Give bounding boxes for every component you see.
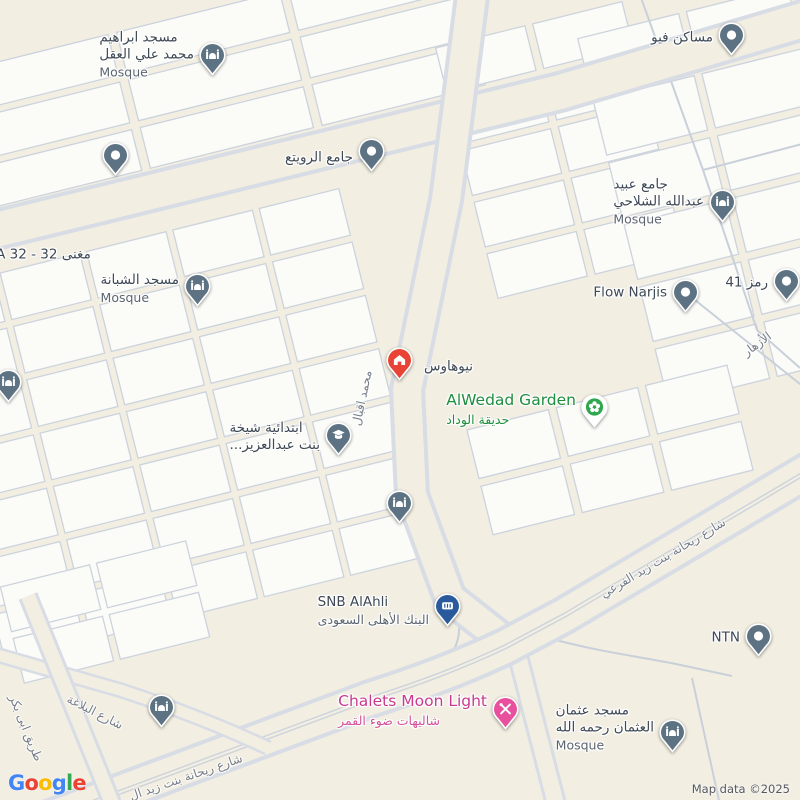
mosque-icon xyxy=(0,369,22,403)
dot-icon xyxy=(718,22,745,56)
poi-label-line: مسجد ابراهيم xyxy=(99,30,177,47)
poi-pin-newhouse[interactable] xyxy=(386,347,413,381)
poi-label-line: مسجد الشبانة xyxy=(101,272,179,289)
dot-icon xyxy=(745,623,772,657)
poi-pin-alwedad-garden[interactable] xyxy=(581,394,608,428)
dot-icon xyxy=(358,138,385,172)
tools-icon xyxy=(492,696,519,730)
poi-pin-masaken-view[interactable] xyxy=(718,22,745,56)
poi-label-alwedad-garden[interactable]: AlWedad Gardenحديقة الوداد xyxy=(446,391,576,429)
poi-label-newhouse[interactable]: نيوهاوس xyxy=(424,359,473,376)
google-logo-letter: g xyxy=(52,771,66,795)
poi-pin-jame-rowaita[interactable] xyxy=(358,138,385,172)
poi-label-chalets-moon-light[interactable]: Chalets Moon Lightشاليهات ضوء القمر xyxy=(338,692,487,730)
mosque-icon xyxy=(709,189,736,223)
poi-label-masjid-ibrahim[interactable]: مسجد ابراهيممحمد علي العقلMosque xyxy=(99,30,194,81)
poi-label-ramz-41[interactable]: رمز 41 xyxy=(725,275,768,292)
poi-label-sub: حديقة الوداد xyxy=(446,410,509,429)
poi-label-line: NTN xyxy=(712,630,740,647)
mosque-icon xyxy=(199,42,226,76)
south-road xyxy=(516,648,558,800)
poi-pin-ramz-41[interactable] xyxy=(773,268,800,302)
poi-label-sub: Mosque xyxy=(101,289,150,306)
poi-label-line: محمد علي العقل xyxy=(99,47,194,64)
poi-label-sub: البنك الأهلى السعودى xyxy=(318,611,429,628)
poi-label-sub: Mosque xyxy=(556,737,605,754)
poi-pin-mosque-southwest[interactable] xyxy=(148,694,175,728)
poi-pin-flow-narjis[interactable] xyxy=(672,279,699,313)
poi-label-line: رمز 41 xyxy=(725,275,768,292)
dot-icon xyxy=(773,268,800,302)
poi-label-line: SNB AlAhli xyxy=(318,594,389,611)
mosque-icon xyxy=(386,490,413,524)
roadmap-base xyxy=(0,0,800,800)
balagha-road xyxy=(0,650,268,748)
mosque-icon xyxy=(659,719,686,753)
house-icon xyxy=(386,347,413,381)
poi-label-line: جامع الرويتع xyxy=(285,150,353,167)
poi-pin-masjid-shabana[interactable] xyxy=(184,273,211,307)
poi-label-snb-alahli[interactable]: SNB AlAhliالبنك الأهلى السعودى xyxy=(318,594,429,628)
dot-icon xyxy=(102,142,129,176)
map-canvas[interactable]: مسجد ابراهيممحمد علي العقلMosqueجامع الر… xyxy=(0,0,800,800)
google-logo[interactable]: Google xyxy=(8,771,86,795)
poi-label-masjid-shabana[interactable]: مسجد الشبانةMosque xyxy=(101,272,179,306)
poi-label-maghna-na-32[interactable]: مغنى NA 32 - 32 xyxy=(0,247,91,264)
poi-label-school-shaikha-bint-abdulaziz[interactable]: ابتدائية شيخةبنت عبدالعزيز... xyxy=(230,420,321,454)
poi-label-line: مسجد عثمان xyxy=(556,703,629,720)
poi-label-masaken-view[interactable]: مساكن فيو xyxy=(651,30,713,47)
poi-pin-snb-alahli[interactable] xyxy=(434,593,461,627)
google-logo-letter: G xyxy=(8,771,24,795)
poi-label-line: Flow Narjis xyxy=(593,285,667,302)
google-logo-letter: o xyxy=(24,771,38,795)
mosque-icon xyxy=(148,694,175,728)
school-icon xyxy=(325,422,352,456)
poi-label-flow-narjis[interactable]: Flow Narjis xyxy=(593,285,667,302)
poi-label-jame-obaid-alshalahi[interactable]: جامع عبيدعبدالله الشلاحيMosque xyxy=(613,177,704,228)
poi-pin-masjid-ibrahim[interactable] xyxy=(199,42,226,76)
poi-label-sub: شاليهات ضوء القمر xyxy=(338,711,440,730)
poi-label-line: بنت عبدالعزيز... xyxy=(230,437,321,454)
poi-pin-mosque-mid[interactable] xyxy=(386,490,413,524)
poi-label-ntn[interactable]: NTN xyxy=(712,630,740,647)
poi-label-jame-rowaita[interactable]: جامع الرويتع xyxy=(285,150,353,167)
poi-label-line: مساكن فيو xyxy=(651,30,713,47)
poi-label-line: جامع عبيد xyxy=(613,177,667,194)
poi-pin-dot-west[interactable] xyxy=(102,142,129,176)
bank-icon xyxy=(434,593,461,627)
poi-label-line: ابتدائية شيخة xyxy=(230,420,303,437)
google-logo-letter: o xyxy=(38,771,52,795)
poi-label-line: AlWedad Garden xyxy=(446,391,576,410)
poi-label-line: العثمان رحمه الله xyxy=(556,720,654,737)
garden-icon xyxy=(581,394,608,428)
poi-label-line: مغنى NA 32 - 32 xyxy=(0,247,91,264)
dot-icon xyxy=(672,279,699,313)
poi-label-sub: Mosque xyxy=(99,64,148,81)
poi-pin-chalets-moon-light[interactable] xyxy=(492,696,519,730)
poi-label-line: Chalets Moon Light xyxy=(338,692,487,711)
mosque-icon xyxy=(184,273,211,307)
poi-label-line: نيوهاوس xyxy=(424,359,473,376)
poi-label-line: عبدالله الشلاحي xyxy=(613,194,704,211)
poi-pin-jame-obaid-alshalahi[interactable] xyxy=(709,189,736,223)
google-logo-letter: e xyxy=(72,771,85,795)
map-attribution: Map data ©2025 xyxy=(692,782,790,796)
poi-pin-ntn[interactable] xyxy=(745,623,772,657)
poi-label-masjid-othman[interactable]: مسجد عثمانالعثمان رحمه اللهMosque xyxy=(556,703,654,754)
poi-pin-school-shaikha-bint-abdulaziz[interactable] xyxy=(325,422,352,456)
poi-pin-mosque-west-edge[interactable] xyxy=(0,369,22,403)
poi-pin-masjid-othman[interactable] xyxy=(659,719,686,753)
poi-label-sub: Mosque xyxy=(613,211,662,228)
